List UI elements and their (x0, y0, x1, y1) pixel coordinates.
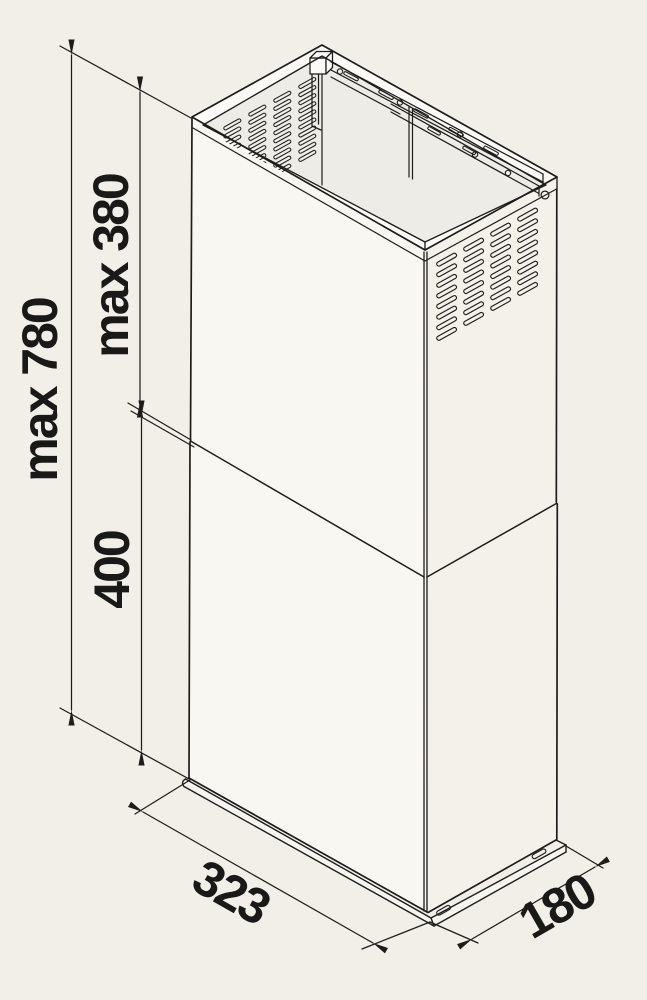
isometric-chimney-duct-drawing (0, 0, 647, 1000)
dimension-label-max-780: max 780 (15, 298, 65, 481)
dimension-label-400: 400 (87, 531, 137, 608)
edge-left-lower (189, 442, 190, 778)
extension-line-323-left (135, 780, 190, 814)
extension-line-323-right (362, 922, 430, 949)
edge-right-lower (557, 504, 558, 840)
dimension-label-max-380: max 380 (86, 174, 136, 357)
edge-right-upper (556, 189, 557, 502)
bracket-cube-front (310, 58, 326, 74)
technical-drawing: max 780 max 380 400 323 180 (0, 0, 647, 1000)
extension-line-seam-lower (131, 411, 194, 447)
extension-line-top (60, 46, 191, 118)
extension-line-bottom (60, 708, 189, 779)
extension-line-seam-upper (128, 403, 191, 440)
extension-line-180-left (430, 922, 478, 943)
